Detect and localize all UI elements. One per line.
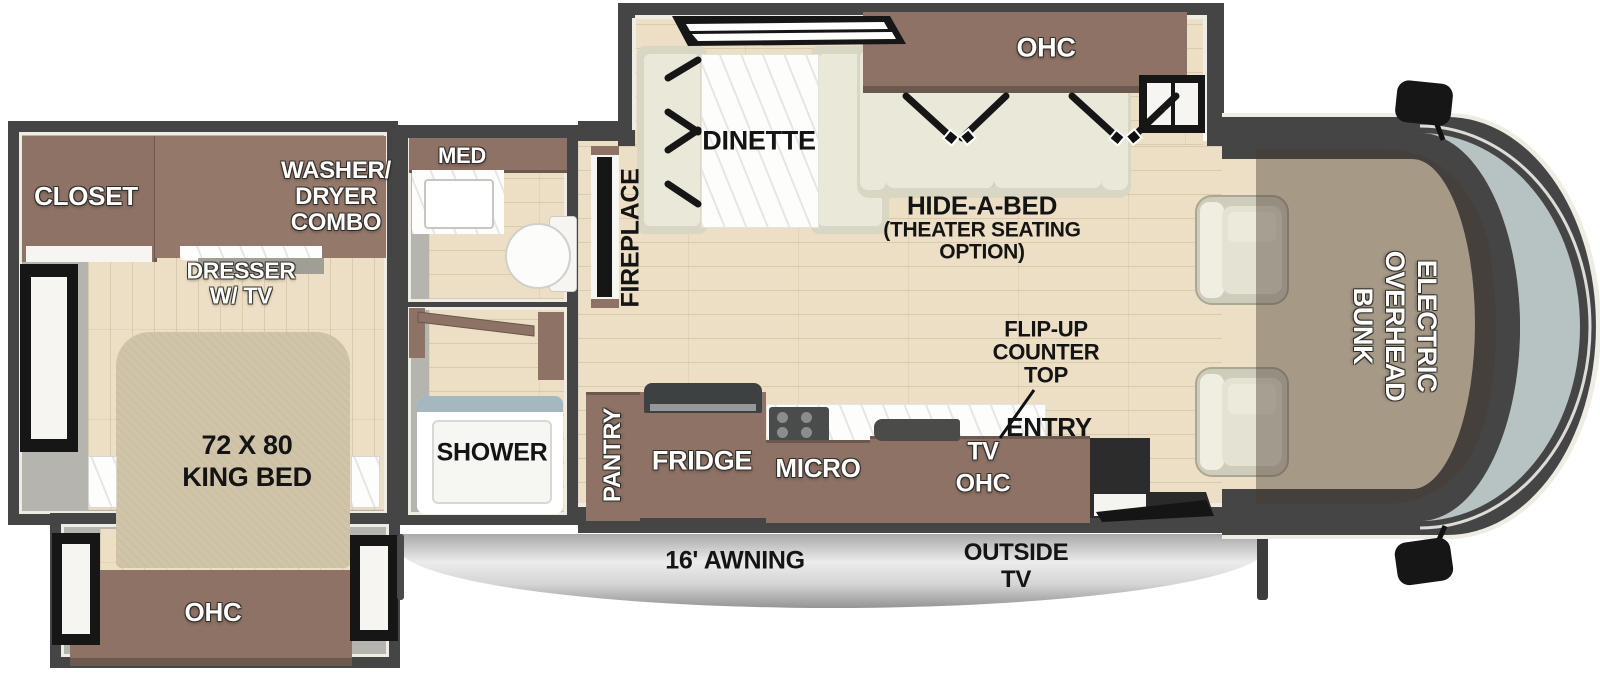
washer-dryer-line1: WASHER/ [281,158,391,184]
label-tv-ohc: OHC [956,472,1011,497]
label-med: MED [438,145,486,167]
dresser-line2: W/ TV [186,284,295,309]
label-pantry: PANTRY [601,408,625,502]
label-entry: ENTRY [1006,414,1092,440]
label-flip-up-counter: FLIP-UP COUNTER TOP [993,319,1100,388]
rv-floorplan: OHC DINETTE HIDE-A-BED (THEATER SEATING … [0,0,1600,681]
bunk-line2: OVERHEAD [1378,251,1410,402]
shower-door [418,312,534,336]
flip-up-line2: COUNTER [993,342,1100,365]
bunk-line3: BUNK [1346,251,1378,402]
outside-tv-line1: OUTSIDE [964,540,1069,567]
label-fridge: FRIDGE [652,448,752,475]
entry-steps [1096,492,1214,522]
flip-up-line1: FLIP-UP [993,319,1100,342]
label-electric-overhead-bunk: ELECTRIC OVERHEAD BUNK [1346,251,1442,402]
label-awning: 16' AWNING [665,549,805,574]
bunk-line1: ELECTRIC [1410,251,1442,402]
hide-a-bed-line3: OPTION) [883,242,1080,264]
label-hide-a-bed: HIDE-A-BED (THEATER SEATING OPTION) [883,192,1080,263]
label-tv: TV [967,440,998,465]
label-micro: MICRO [775,455,860,481]
label-bedroom-ohc: OHC [185,599,242,625]
king-bed-line1: 72 X 80 [182,430,312,462]
sofa-seat-belts [906,96,1176,145]
label-washer-dryer: WASHER/ DRYER COMBO [281,158,391,236]
dresser-line1: DRESSER [186,259,295,284]
washer-dryer-line3: COMBO [281,210,391,236]
dinette-seat-belts [668,60,698,204]
label-fireplace: FIREPLACE [619,169,644,308]
hide-a-bed-line1: HIDE-A-BED [883,192,1080,219]
label-king-bed: 72 X 80 KING BED [182,430,312,494]
washer-dryer-line2: DRYER [281,184,391,210]
label-outside-tv: OUTSIDE TV [964,540,1069,594]
flip-up-line3: TOP [993,364,1100,387]
dinette-window [672,16,906,46]
hide-a-bed-line2: (THEATER SEATING [883,220,1080,242]
label-living-ohc: OHC [1016,35,1075,62]
outside-tv-line2: TV [964,567,1069,594]
label-closet: CLOSET [34,183,138,209]
king-bed-line2: KING BED [182,462,312,494]
label-dresser: DRESSER W/ TV [186,259,295,310]
label-dinette: DINETTE [702,128,815,155]
label-shower: SHOWER [437,441,548,466]
